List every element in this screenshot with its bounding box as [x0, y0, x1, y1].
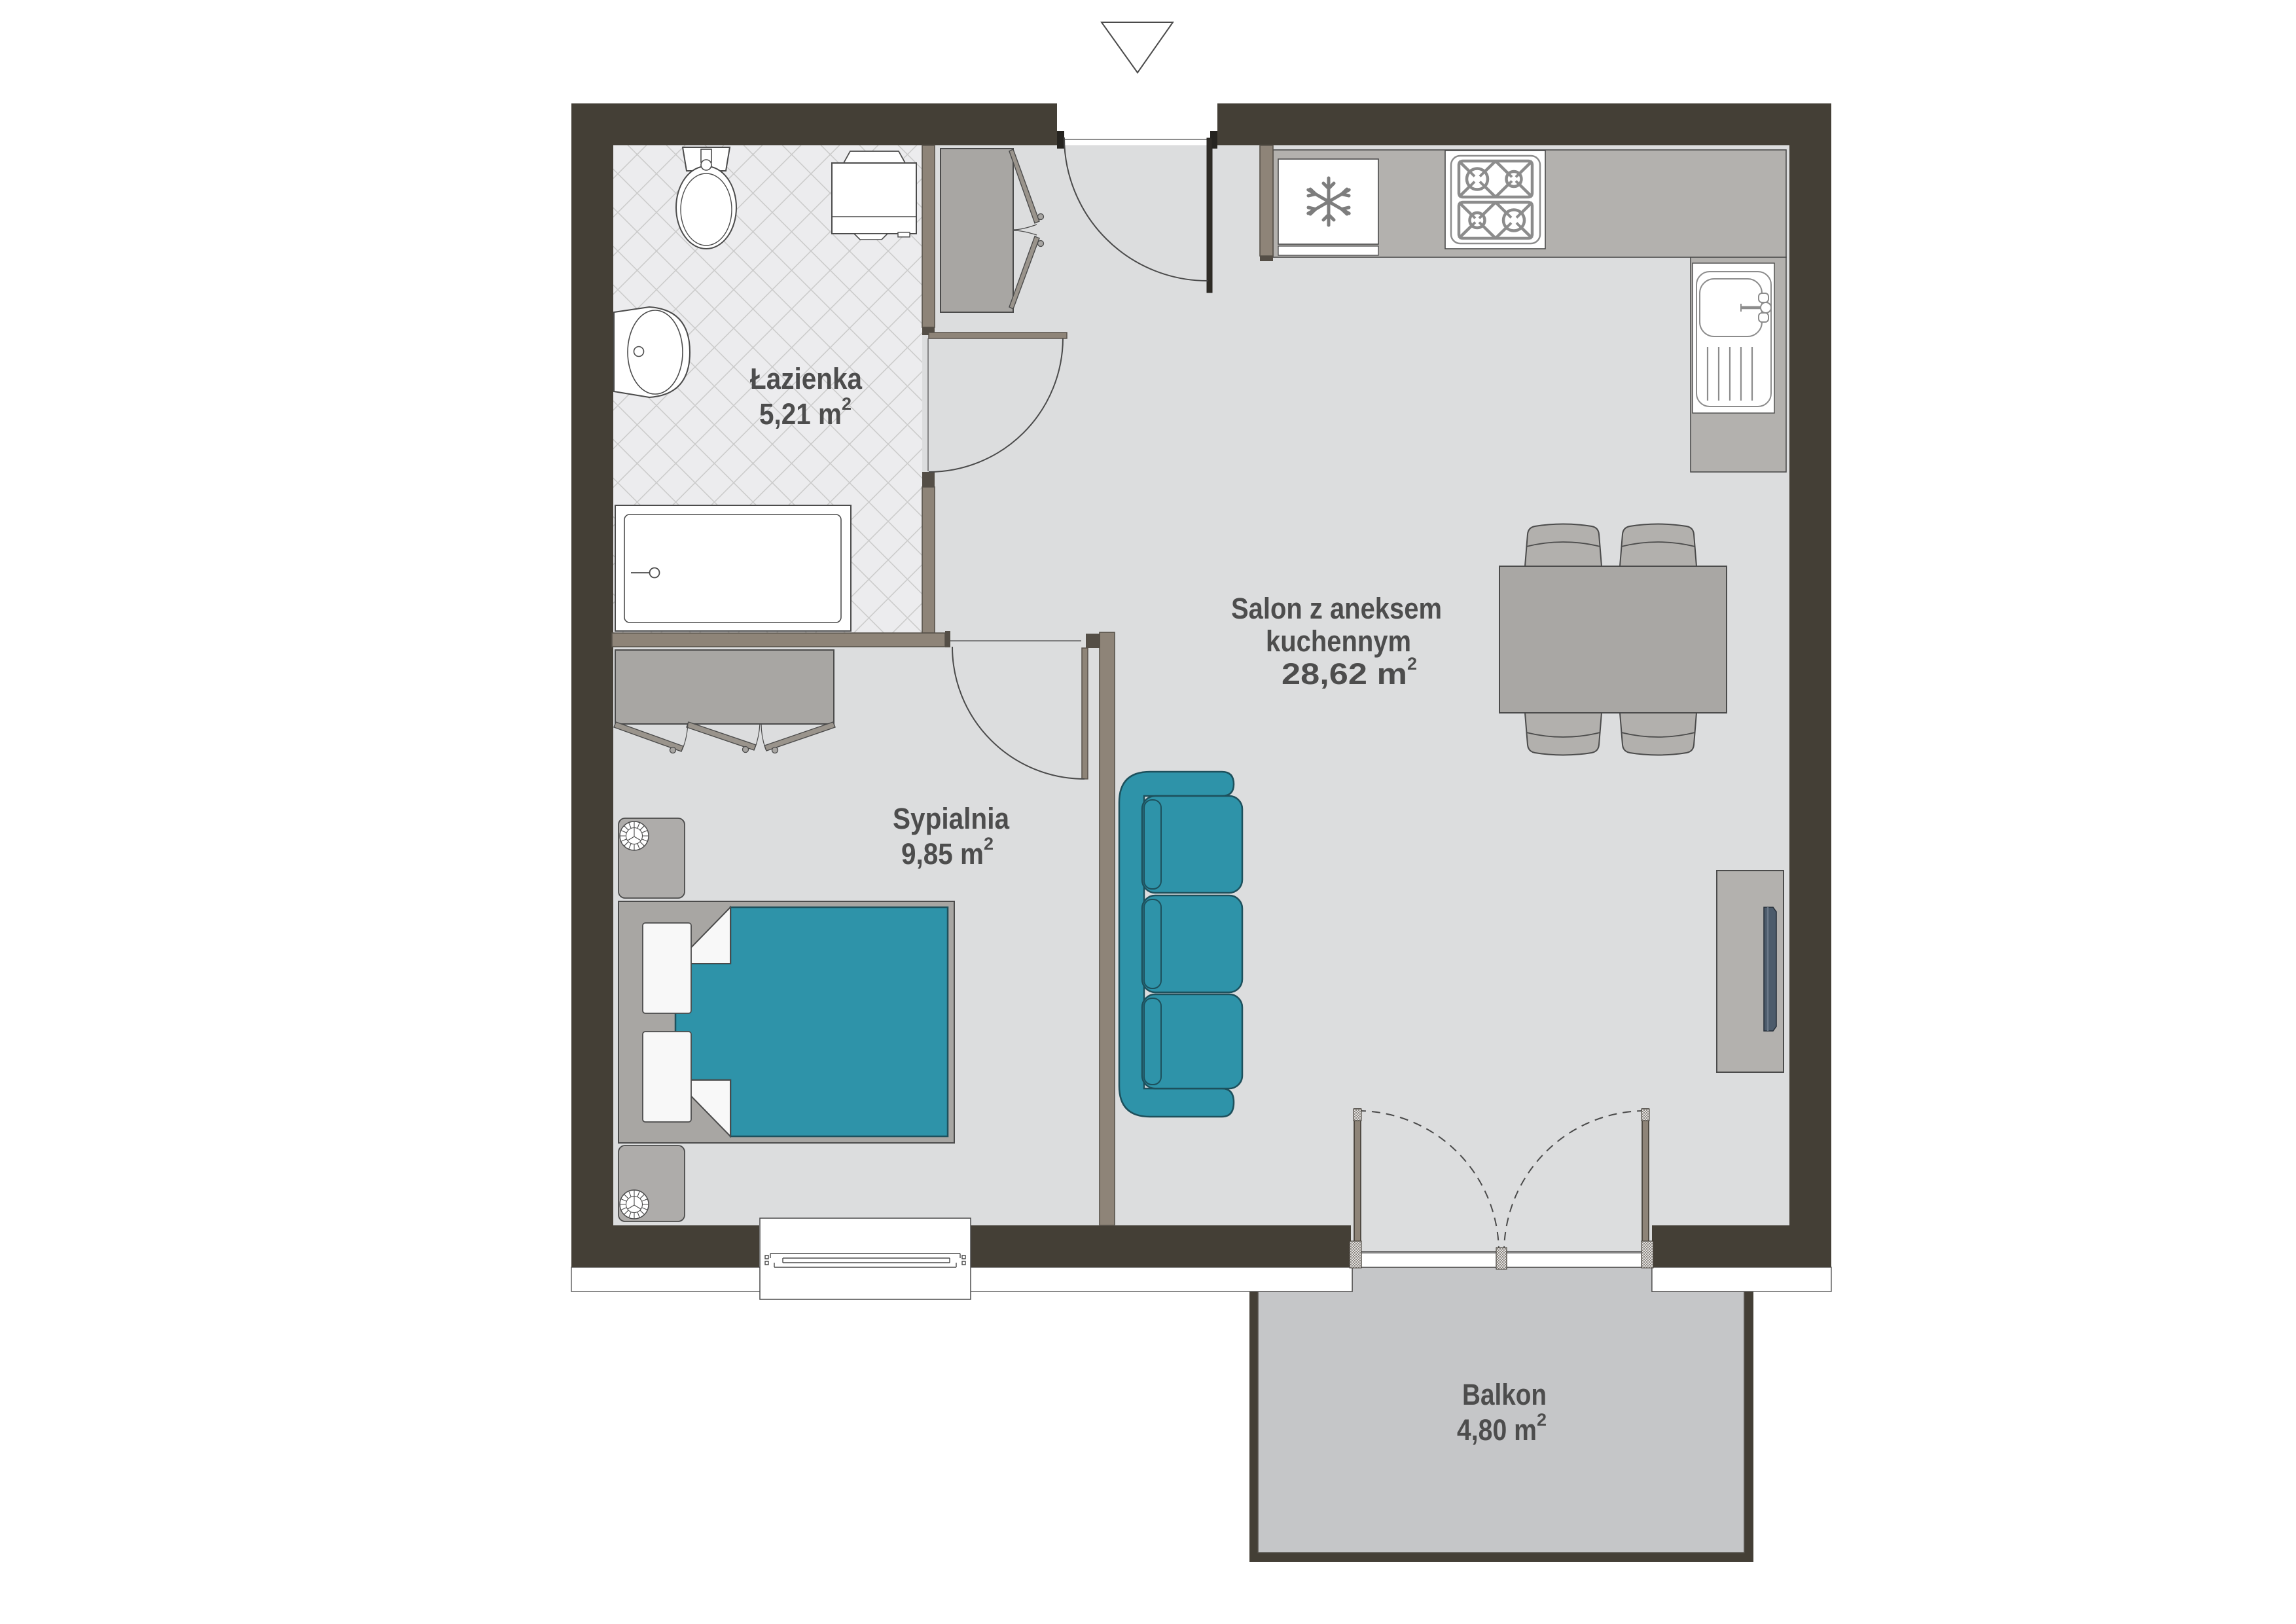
svg-text:28,62 m2: 28,62 m2	[1282, 654, 1417, 691]
svg-text:Łazienka: Łazienka	[750, 362, 863, 395]
svg-text:Balkon: Balkon	[1462, 1378, 1547, 1411]
svg-text:9,85 m2: 9,85 m2	[901, 834, 994, 871]
svg-text:kuchennym: kuchennym	[1266, 624, 1411, 658]
svg-text:Salon z aneksem: Salon z aneksem	[1231, 592, 1442, 625]
svg-text:Sypialnia: Sypialnia	[893, 802, 1010, 835]
svg-text:4,80 m2: 4,80 m2	[1457, 1410, 1547, 1447]
svg-text:5,21 m2: 5,21 m2	[759, 394, 852, 431]
